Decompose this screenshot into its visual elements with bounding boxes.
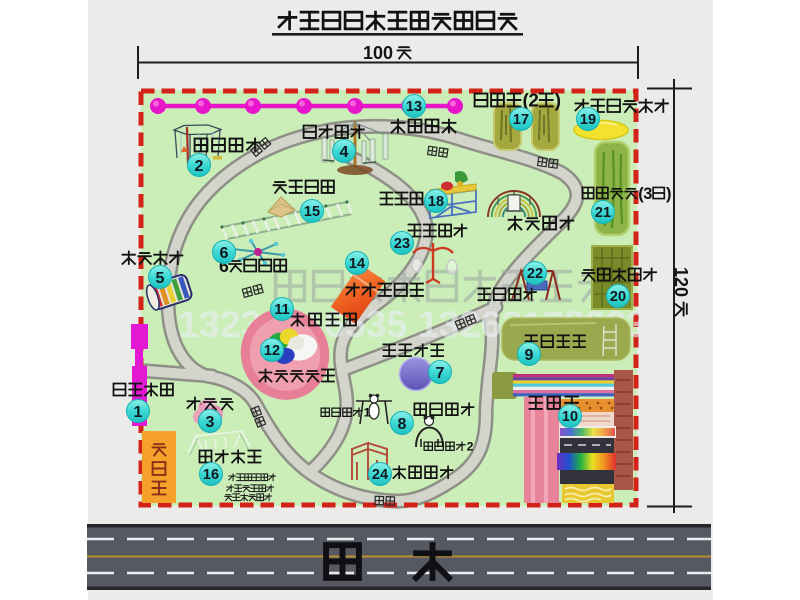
svg-text:4: 4 <box>340 144 349 161</box>
svg-text:10: 10 <box>562 409 578 425</box>
svg-text:22: 22 <box>527 266 543 282</box>
svg-text:2: 2 <box>528 91 539 112</box>
svg-text:): ) <box>555 91 561 112</box>
svg-text:21: 21 <box>595 205 611 221</box>
svg-text:1: 1 <box>364 406 371 420</box>
svg-text:14: 14 <box>349 256 365 272</box>
svg-text:24: 24 <box>372 467 388 483</box>
svg-text:5: 5 <box>156 270 165 287</box>
svg-text:18: 18 <box>428 194 444 210</box>
svg-text:16: 16 <box>203 467 219 483</box>
svg-text:13: 13 <box>406 99 422 115</box>
svg-text:1: 1 <box>134 404 143 421</box>
svg-text:100: 100 <box>363 43 393 63</box>
svg-text:2: 2 <box>467 440 474 454</box>
svg-text:7: 7 <box>436 365 445 382</box>
svg-text:6: 6 <box>220 245 229 262</box>
svg-text:3: 3 <box>643 185 652 203</box>
svg-text:120: 120 <box>671 267 691 297</box>
svg-text:8: 8 <box>398 416 407 433</box>
svg-text:19: 19 <box>580 112 596 128</box>
svg-text:11: 11 <box>274 302 289 318</box>
svg-text:17: 17 <box>513 112 529 128</box>
svg-text:12: 12 <box>264 343 280 359</box>
svg-text:): ) <box>666 185 672 203</box>
svg-text:23: 23 <box>394 236 410 252</box>
svg-text:9: 9 <box>525 347 534 364</box>
svg-text:15: 15 <box>304 204 320 220</box>
svg-text:2: 2 <box>195 158 204 175</box>
svg-text:3: 3 <box>206 414 215 431</box>
svg-text:20: 20 <box>610 289 626 305</box>
